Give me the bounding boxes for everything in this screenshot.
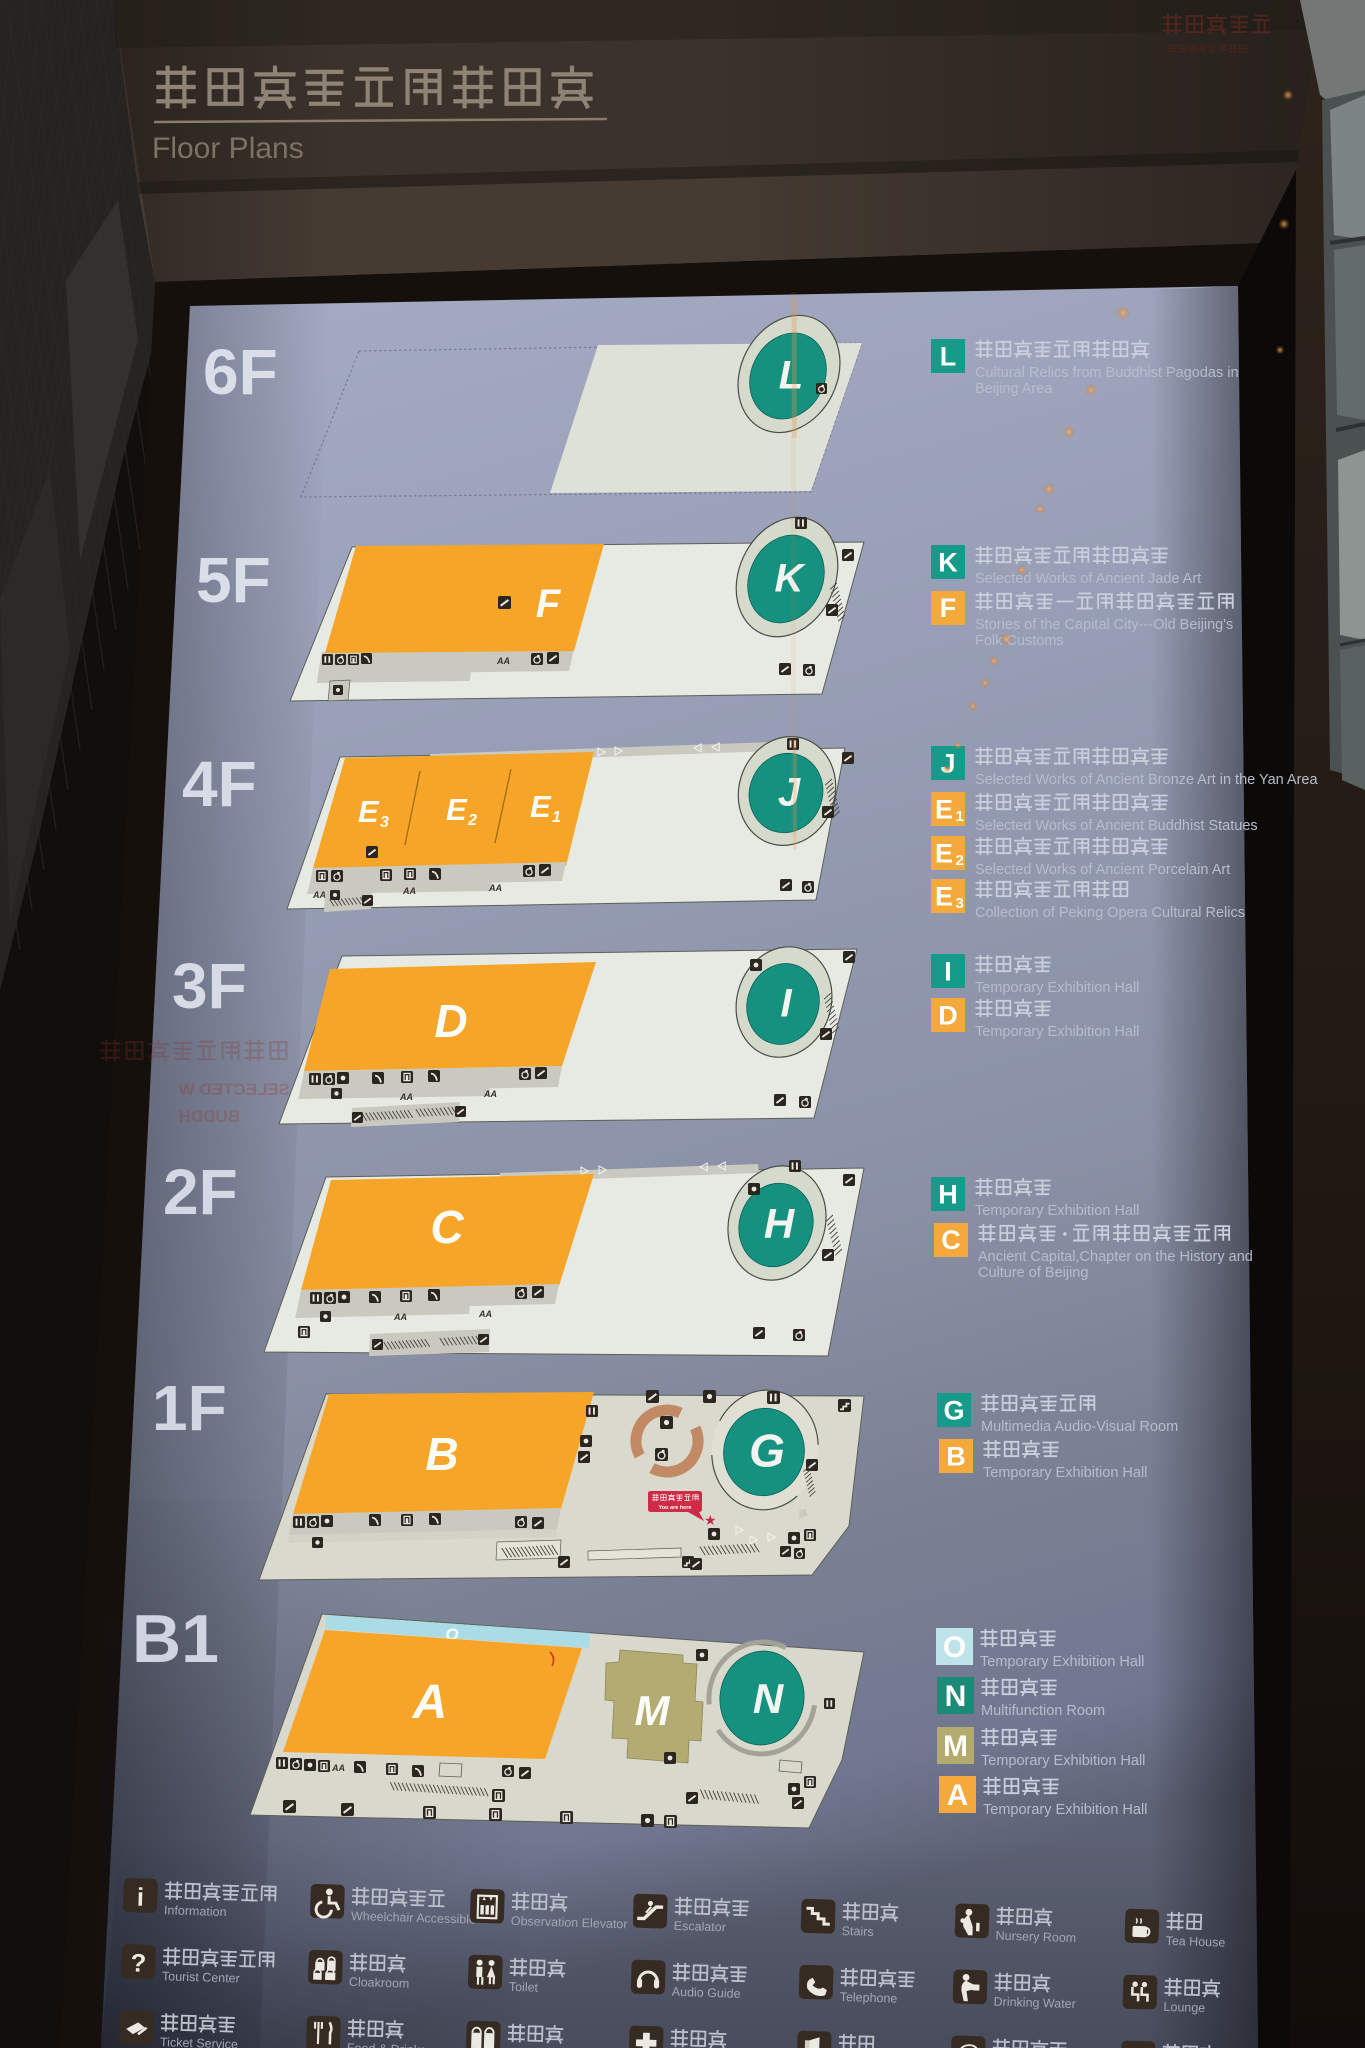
svg-text:Multimedia Audio-Visual Room: Multimedia Audio-Visual Room — [981, 1419, 1178, 1435]
svg-text:Lounge: Lounge — [1163, 2000, 1205, 2015]
svg-text:Collection of Peking Opera Cul: Collection of Peking Opera Cultural Reli… — [975, 905, 1245, 921]
svg-text:2F: 2F — [163, 1156, 238, 1228]
svg-text:@: @ — [955, 2040, 981, 2048]
svg-text:D: D — [434, 995, 467, 1047]
svg-text:Selected Works of Ancient Budd: Selected Works of Ancient Buddhist Statu… — [975, 818, 1258, 834]
svg-text:Stories of the Capital City---: Stories of the Capital City---Old Beijin… — [975, 617, 1233, 633]
svg-text:M: M — [943, 1730, 968, 1763]
svg-text:Folk Customs: Folk Customs — [975, 633, 1064, 649]
svg-text:C: C — [430, 1201, 464, 1253]
svg-text:Multifunction Room: Multifunction Room — [981, 1703, 1105, 1719]
svg-text:H: H — [938, 1180, 958, 1210]
svg-text:1: 1 — [552, 809, 561, 826]
svg-text:F: F — [536, 582, 562, 626]
svg-text:E: E — [935, 882, 953, 912]
svg-text:Beijing Area: Beijing Area — [975, 381, 1053, 397]
svg-text:Ancient Capital,Chapter on the: Ancient Capital,Chapter on the History a… — [978, 1249, 1253, 1265]
svg-text:★: ★ — [704, 1512, 717, 1528]
svg-text:Cloakroom: Cloakroom — [349, 1975, 410, 1991]
svg-text:5F: 5F — [196, 544, 271, 616]
svg-text:Tea House: Tea House — [1165, 1934, 1225, 1950]
svg-text:1: 1 — [956, 808, 964, 825]
svg-text:Temporary Exhibition Hall: Temporary Exhibition Hall — [975, 1024, 1139, 1040]
svg-text:AA: AA — [478, 1309, 492, 1319]
svg-text:3F: 3F — [172, 950, 247, 1022]
svg-text:AA: AA — [393, 1312, 407, 1322]
svg-text:SELECTED W: SELECTED W — [178, 1080, 290, 1099]
svg-text:Tourist Center: Tourist Center — [162, 1969, 240, 1985]
svg-text:2: 2 — [956, 852, 964, 869]
svg-text:AA: AA — [312, 890, 326, 900]
svg-text:Escalator: Escalator — [674, 1919, 727, 1935]
svg-text:6F: 6F — [203, 336, 278, 408]
svg-text:Cultural Relics from Buddhist: Cultural Relics from Buddhist Pagodas in — [975, 365, 1239, 381]
svg-text:B: B — [425, 1428, 458, 1480]
svg-text:Telephone: Telephone — [839, 1990, 897, 2006]
svg-text:AA: AA — [402, 886, 416, 896]
svg-text:F: F — [940, 593, 957, 623]
svg-text:O: O — [943, 1631, 966, 1664]
svg-text:Ticket Service: Ticket Service — [160, 2035, 238, 2048]
svg-text:N: N — [753, 1675, 785, 1722]
svg-text:Stairs: Stairs — [842, 1924, 874, 1939]
svg-text:You are here: You are here — [659, 1505, 692, 1511]
svg-text:Selected Works of Ancient Bron: Selected Works of Ancient Bronze Art in … — [975, 772, 1318, 788]
svg-text:AA: AA — [331, 1763, 345, 1773]
svg-text:AA: AA — [496, 656, 510, 666]
svg-text:Nursery Room: Nursery Room — [995, 1929, 1076, 1945]
svg-text:I: I — [780, 981, 792, 1025]
svg-text:N: N — [945, 1680, 967, 1713]
svg-text:K: K — [775, 556, 807, 600]
svg-text:K: K — [938, 548, 958, 578]
svg-text:Culture of Beijing: Culture of Beijing — [978, 1265, 1088, 1281]
svg-text:Temporary Exhibition Hall: Temporary Exhibition Hall — [975, 1203, 1139, 1219]
svg-text:AA: AA — [488, 883, 502, 893]
svg-text:3: 3 — [956, 895, 964, 912]
svg-text:A: A — [412, 1676, 448, 1729]
svg-text:Selected Works of Ancient Porc: Selected Works of Ancient Porcelain Art — [975, 862, 1230, 878]
svg-text:i: i — [136, 1884, 144, 1912]
svg-text:Toilet: Toilet — [509, 1980, 539, 1995]
svg-text:D: D — [938, 1001, 958, 1031]
svg-text:Temporary Exhibition Hall: Temporary Exhibition Hall — [975, 980, 1139, 996]
svg-text:M: M — [635, 1687, 671, 1734]
svg-text:E: E — [935, 795, 953, 825]
svg-text:I: I — [944, 957, 952, 987]
svg-text:A: A — [799, 1508, 807, 1519]
svg-text:E: E — [530, 789, 552, 824]
svg-text:J: J — [778, 770, 801, 814]
svg-text:Information: Information — [164, 1903, 227, 1919]
svg-text:G: G — [943, 1396, 964, 1426]
svg-text:?: ? — [130, 1949, 146, 1977]
svg-text:Temporary Exhibition Hall: Temporary Exhibition Hall — [983, 1465, 1147, 1481]
svg-text:Temporary Exhibition Hall: Temporary Exhibition Hall — [981, 1753, 1145, 1769]
svg-text:J: J — [940, 749, 955, 779]
svg-text:Audio Guide: Audio Guide — [672, 1985, 741, 2001]
svg-text:BUDDH: BUDDH — [179, 1107, 240, 1126]
svg-text:E: E — [358, 794, 380, 829]
svg-text:B1: B1 — [132, 1601, 219, 1677]
svg-text:AA: AA — [399, 1092, 413, 1102]
svg-text:L: L — [940, 342, 957, 372]
svg-text:Temporary Exhibition Hall: Temporary Exhibition Hall — [980, 1654, 1144, 1670]
svg-text:Temporary Exhibition Hall: Temporary Exhibition Hall — [983, 1802, 1147, 1818]
svg-text:AA: AA — [483, 1089, 497, 1099]
svg-text:E: E — [446, 792, 468, 827]
svg-text:C: C — [941, 1225, 961, 1255]
svg-text:E: E — [935, 839, 953, 869]
svg-text:2: 2 — [467, 812, 477, 829]
svg-text:Floor Plans: Floor Plans — [152, 132, 304, 165]
svg-text:B: B — [946, 1442, 966, 1472]
svg-text:G: G — [749, 1425, 785, 1477]
svg-text:3: 3 — [380, 814, 389, 831]
svg-text:Selected Works of Ancient Jade: Selected Works of Ancient Jade Art — [975, 571, 1201, 587]
svg-text:Drinking Water: Drinking Water — [993, 1995, 1076, 2012]
svg-text:A: A — [947, 1779, 969, 1812]
svg-text:H: H — [764, 1200, 796, 1247]
svg-text:1F: 1F — [152, 1372, 227, 1444]
svg-text:4F: 4F — [182, 748, 257, 820]
